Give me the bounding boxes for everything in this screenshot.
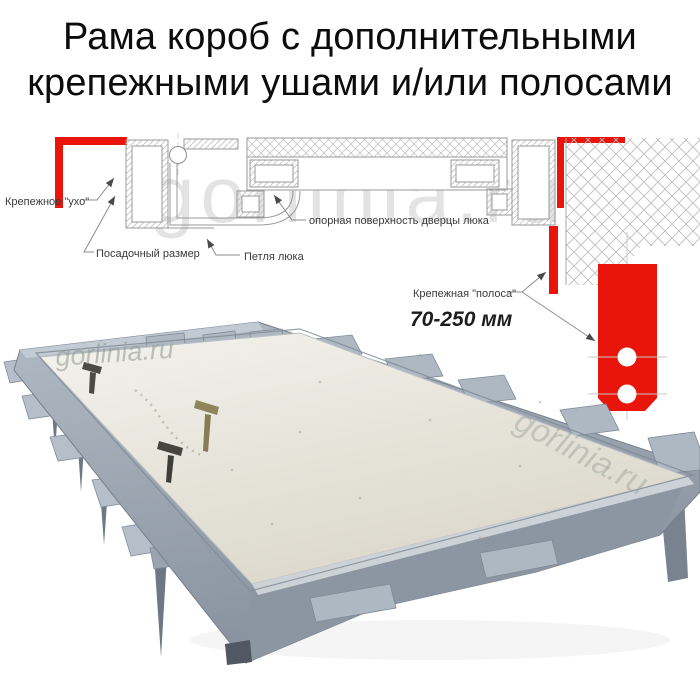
frame-channel-left (126, 140, 168, 228)
frame-channel-right (512, 140, 555, 225)
label-support-surface: опорная поверхность дверцы люка (309, 215, 490, 227)
strip-hole (618, 385, 637, 404)
tube-right (487, 189, 512, 215)
label-fastening-strip: Крепежная "полоса" (413, 288, 516, 300)
label-strip-range: 70-250 мм (410, 308, 513, 331)
page-title: Рама короб с дополнительными крепежными … (0, 14, 700, 106)
page-title-line-1: Рама короб с дополнительными (0, 14, 700, 60)
door-slab (247, 138, 507, 157)
corner-tube-opening (225, 640, 252, 665)
hinge-circle (170, 147, 187, 164)
label-fastening-ear: Крепежное "ухо" (5, 196, 89, 208)
product-photo: gorlinia.ru gorlinia.ru (4, 322, 700, 665)
wall-hatch (566, 138, 700, 285)
label-hinge: Петля люка (244, 251, 305, 263)
ceiling-slab-left (184, 139, 238, 149)
product-image: gorlinia.ru (0, 0, 700, 700)
label-seat-size: Посадочный размер (96, 248, 200, 260)
page-title-line-2: крепежными ушами и/или полосами (0, 60, 700, 106)
hinge-tube-left (237, 191, 264, 217)
strip-hole (618, 348, 637, 367)
fastening-strip-side-shape (549, 226, 558, 294)
